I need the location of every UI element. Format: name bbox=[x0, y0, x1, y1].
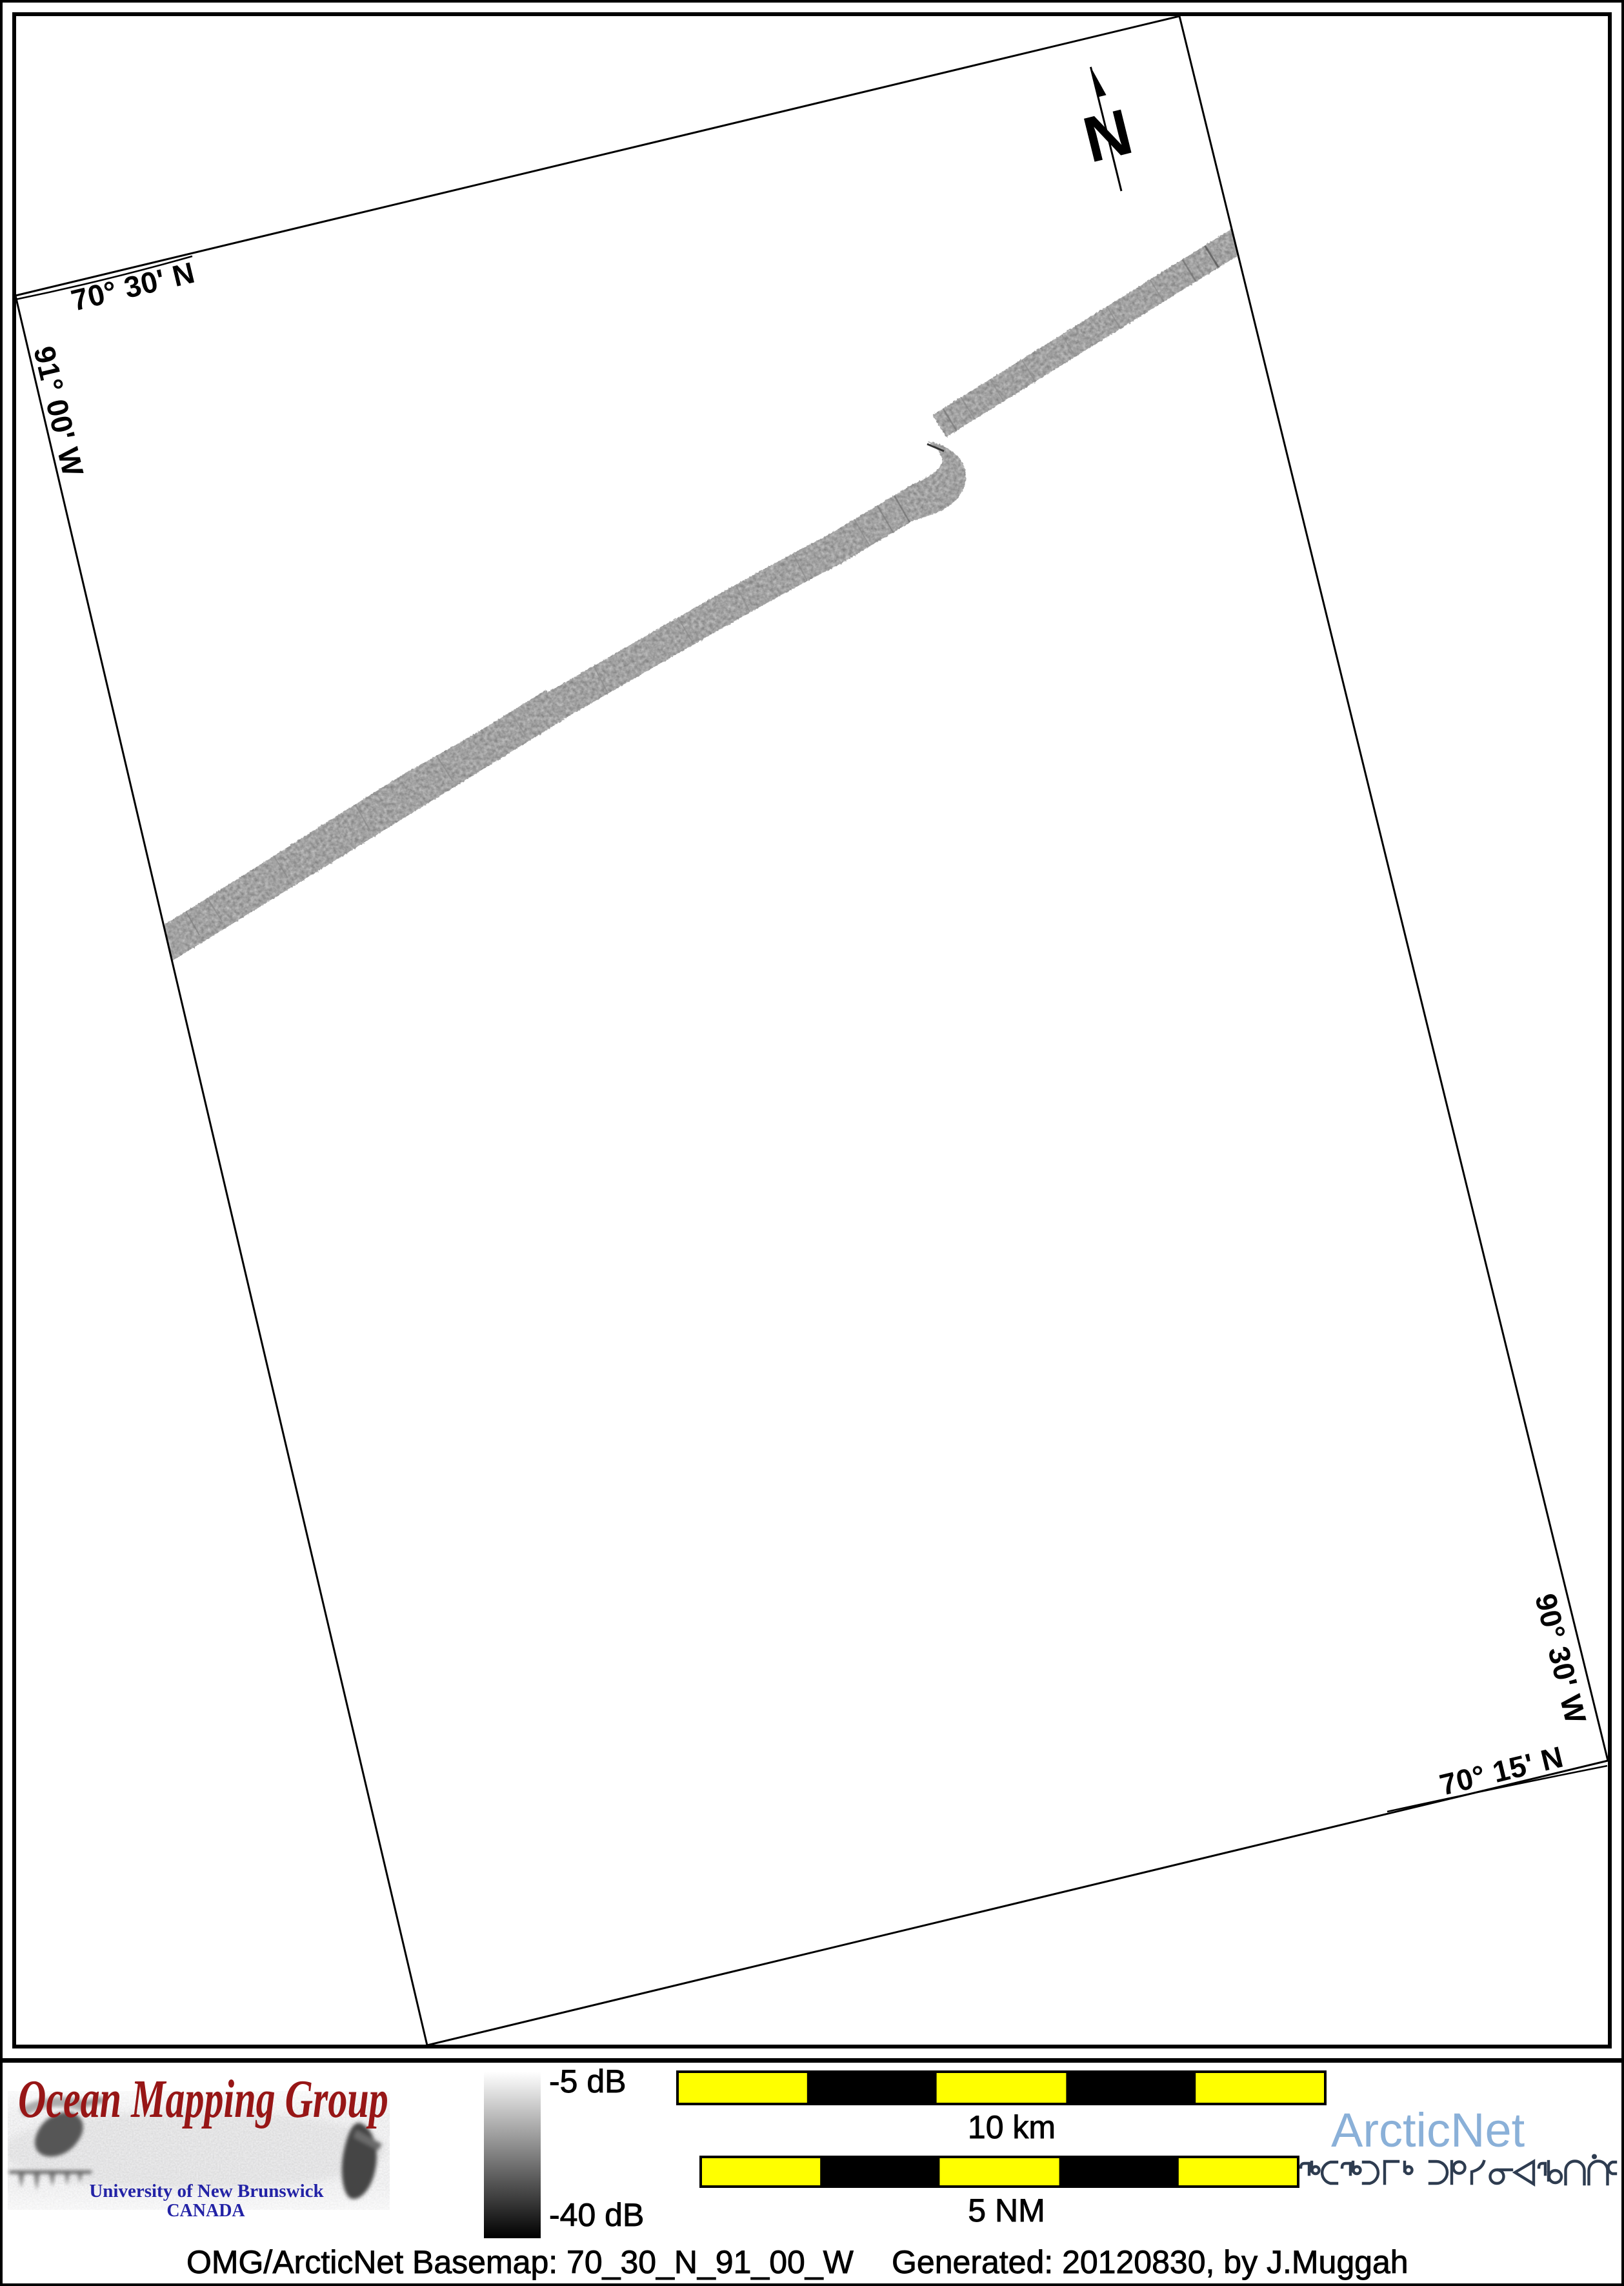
svg-text:Generated: 20120830, by J.Mugg: Generated: 20120830, by J.Muggah bbox=[892, 2244, 1408, 2280]
svg-text:-5 dB: -5 dB bbox=[549, 2063, 627, 2099]
svg-text:ArcticNet: ArcticNet bbox=[1331, 2103, 1525, 2157]
svg-text:University of New Brunswick: University of New Brunswick bbox=[89, 2181, 324, 2201]
svg-text:-40 dB: -40 dB bbox=[549, 2197, 644, 2233]
svg-text:5 NM: 5 NM bbox=[968, 2192, 1045, 2229]
svg-text:Ocean Mapping Group: Ocean Mapping Group bbox=[18, 2069, 388, 2129]
svg-text:10 km: 10 km bbox=[968, 2109, 1056, 2145]
svg-text:CANADA: CANADA bbox=[166, 2201, 245, 2221]
svg-text:OMG/ArcticNet Basemap: 70_30_N: OMG/ArcticNet Basemap: 70_30_N_91_00_W bbox=[186, 2244, 854, 2280]
